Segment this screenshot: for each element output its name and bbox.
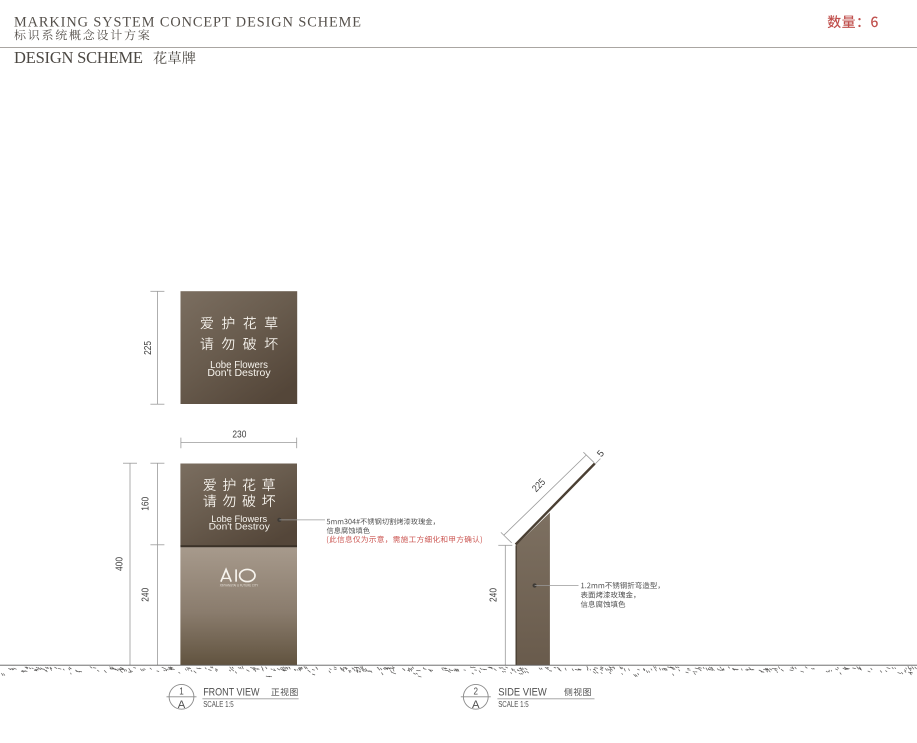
svg-text:A: A: [178, 699, 186, 711]
svg-text:XINYANGTAI & FUTURE CITY: XINYANGTAI & FUTURE CITY: [220, 583, 259, 587]
svg-text:SCALE 1:5: SCALE 1:5: [203, 700, 234, 709]
svg-text:240: 240: [141, 587, 152, 601]
svg-text:Don't Destroy: Don't Destroy: [207, 368, 271, 379]
svg-text:SIDE VIEW: SIDE VIEW: [498, 686, 547, 698]
svg-text:1: 1: [179, 687, 184, 698]
svg-text:SCALE 1:5: SCALE 1:5: [498, 700, 529, 709]
svg-text:230: 230: [232, 429, 246, 440]
svg-text:5: 5: [595, 448, 607, 459]
svg-text:MARKING SYSTEM CONCEPT DESIGN: MARKING SYSTEM CONCEPT DESIGN SCHEME: [14, 14, 361, 30]
svg-text:FRONT VIEW: FRONT VIEW: [203, 686, 260, 698]
svg-text:160: 160: [141, 496, 152, 510]
svg-text:225: 225: [143, 341, 154, 355]
svg-text:DESIGN SCHEME: DESIGN SCHEME: [14, 48, 143, 67]
svg-text:240: 240: [489, 588, 500, 602]
svg-text:Don't Destroy: Don't Destroy: [209, 521, 270, 532]
svg-text:225: 225: [530, 477, 548, 495]
svg-text:2: 2: [474, 687, 479, 698]
svg-text:A: A: [472, 699, 480, 711]
svg-text:400: 400: [115, 557, 126, 571]
